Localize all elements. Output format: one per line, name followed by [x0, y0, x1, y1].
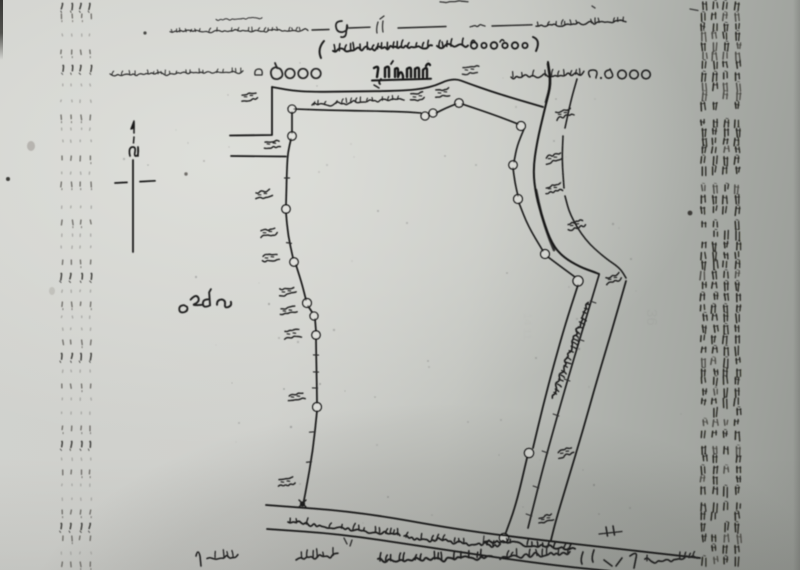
svg-text:14 11: 14 11: [521, 313, 533, 340]
svg-text:36: 36: [643, 309, 660, 326]
